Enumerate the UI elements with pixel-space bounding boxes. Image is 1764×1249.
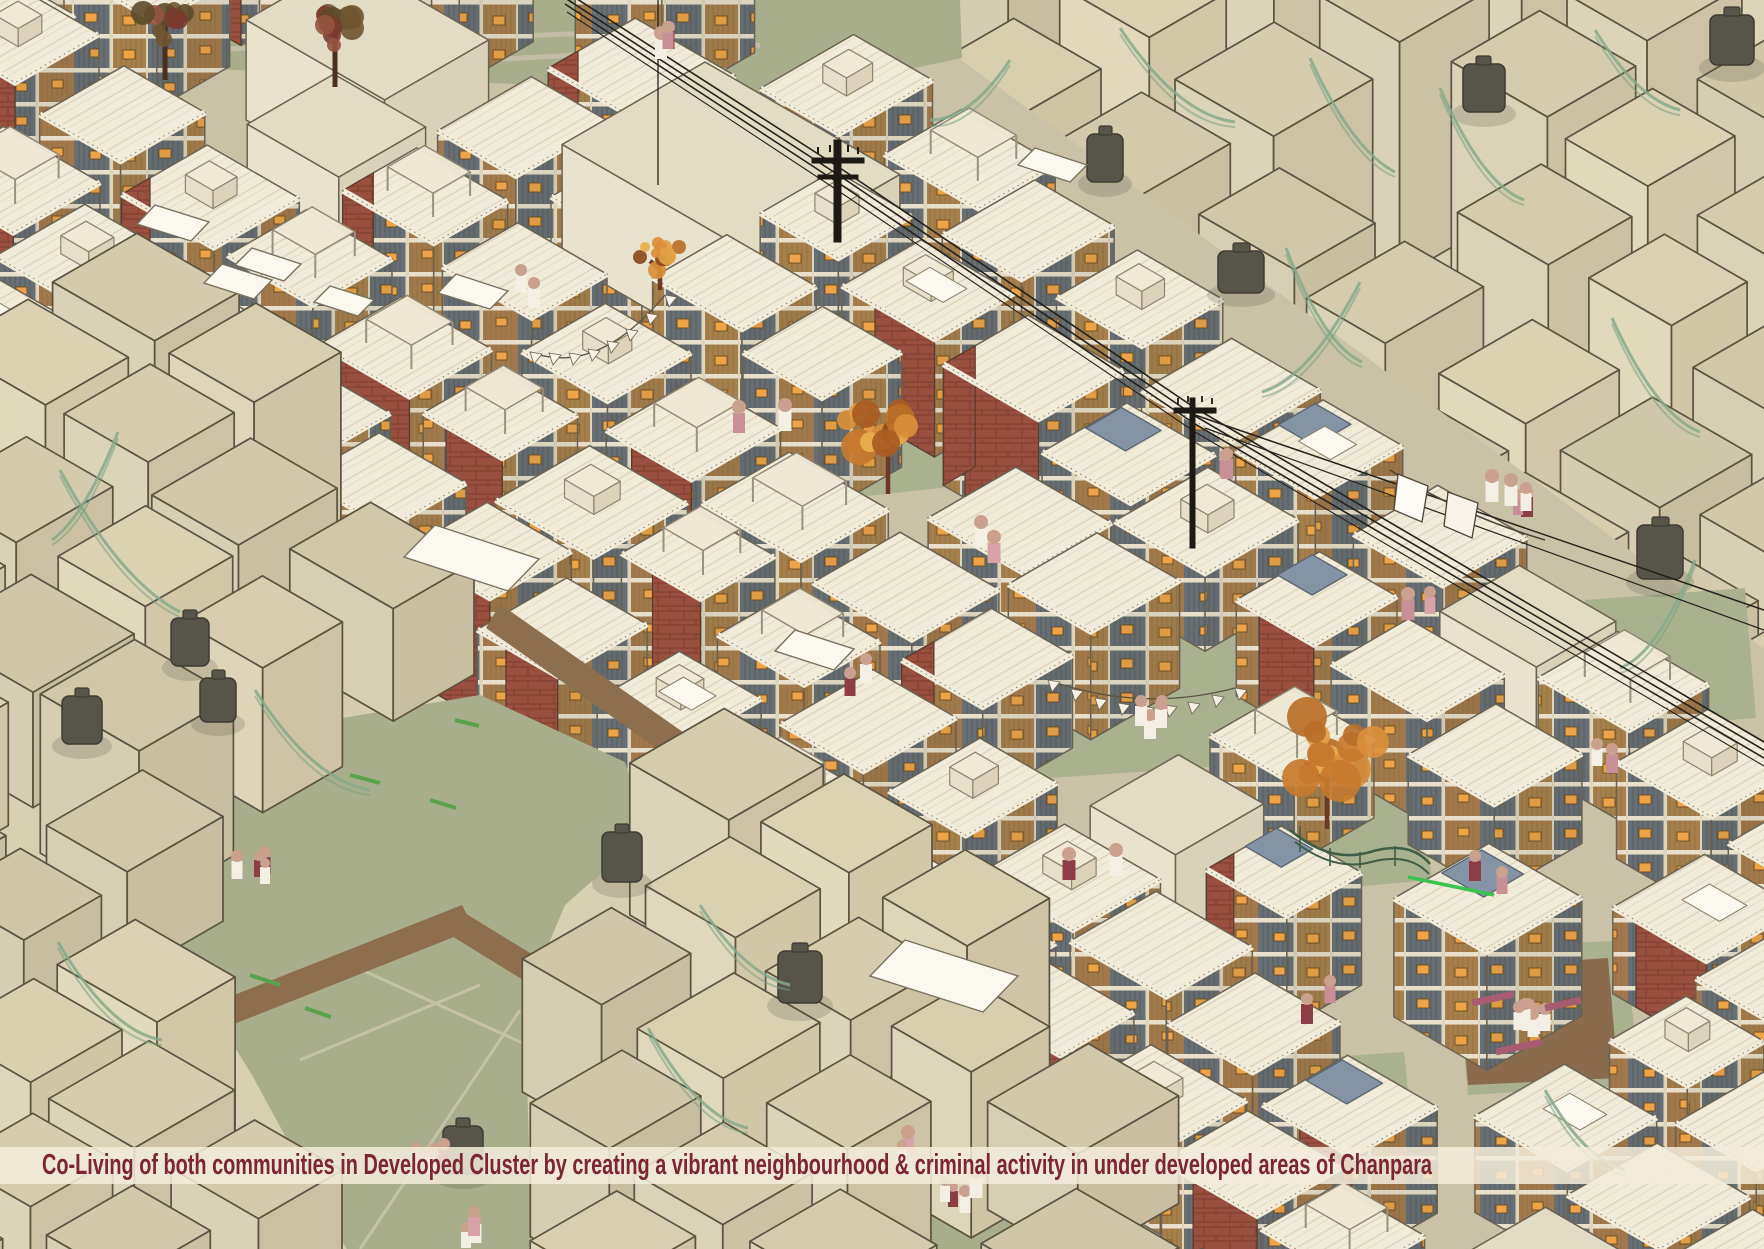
- svg-text:Co-Living of both communities: Co-Living of both communities in Develop…: [42, 1149, 1433, 1181]
